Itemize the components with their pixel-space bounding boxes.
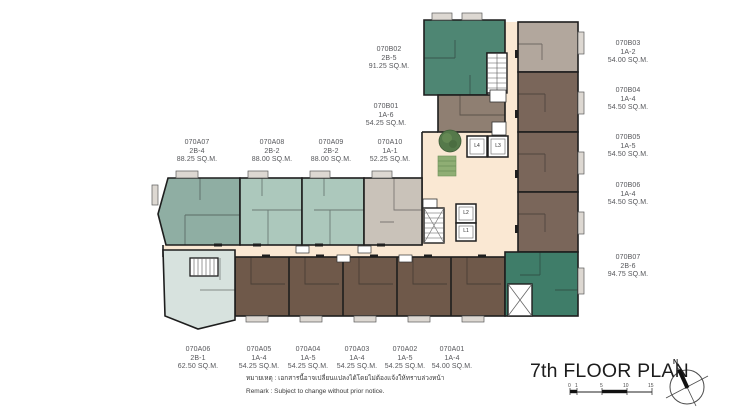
scale-tick-1: 1 <box>575 384 578 389</box>
remark-text: หมายเหตุ : เอกสารนี้อาจเปลี่ยนแปลงได้โดย… <box>246 373 444 398</box>
unit-label-070B06: 070B06 1A-4 54.50 SQ.M. <box>584 182 672 208</box>
elevator-label-l3: L3 <box>495 144 501 149</box>
unit-070A10-shape <box>364 178 422 245</box>
stairwell-north <box>487 53 507 93</box>
unit-070B03-shape <box>518 22 578 72</box>
elevator-label-l4: L4 <box>474 144 480 149</box>
scale-tick-5: 5 <box>600 384 603 389</box>
unit-070A08-shape <box>240 178 302 245</box>
elevator-label-l1: L1 <box>463 229 469 234</box>
stairwell-junction <box>424 208 444 243</box>
unit-label-070A10: 070A10 1A-1 52.25 SQ.M. <box>346 139 434 165</box>
page-title: 7th FLOOR PLAN <box>530 360 689 382</box>
scale-tick-0: 0 <box>568 384 571 389</box>
unit-070A07-shape <box>158 178 240 245</box>
scale-tick-10: 10 <box>623 384 629 389</box>
service-box <box>490 90 506 102</box>
scale-tick-15: 15 <box>648 384 654 389</box>
scale-bar <box>570 388 652 395</box>
stairwell-b07 <box>508 284 532 316</box>
unit-label-070A01: 070A01 1A-4 54.00 SQ.M. <box>408 346 496 372</box>
remark-english: Remark : Subject to change without prior… <box>246 386 444 399</box>
unit-070B05-shape <box>518 132 578 192</box>
unit-label-070B02: 070B02 2B-5 91.25 SQ.M. <box>345 46 433 72</box>
unit-label-070B05: 070B05 1A-5 54.50 SQ.M. <box>584 134 672 160</box>
compass-north-label: N <box>673 359 678 366</box>
unit-070A09-shape <box>302 178 364 245</box>
unit-label-070B07: 070B07 2B-6 94.75 SQ.M. <box>584 254 672 280</box>
floor-plan-page: 070A07 2B-4 88.25 SQ.M. 070A08 2B-2 88.0… <box>0 0 745 415</box>
stairwell-a06 <box>190 258 218 276</box>
bottom-row-shape <box>235 257 505 316</box>
unit-label-070B03: 070B03 1A-2 54.00 SQ.M. <box>584 40 672 66</box>
wing-a-top-row <box>158 178 422 245</box>
remark-thai: หมายเหตุ : เอกสารนี้อาจเปลี่ยนแปลงได้โดย… <box>246 373 444 386</box>
elevator-bank-upper <box>467 136 508 157</box>
unit-label-070B04: 070B04 1A-4 54.50 SQ.M. <box>584 87 672 113</box>
elevator-label-l2: L2 <box>463 211 469 216</box>
service-box <box>423 199 437 208</box>
service-box <box>492 122 506 135</box>
unit-070B06-shape <box>518 192 578 252</box>
unit-070B04-shape <box>518 72 578 132</box>
unit-label-070B01: 070B01 1A-6 54.25 SQ.M. <box>342 103 430 129</box>
